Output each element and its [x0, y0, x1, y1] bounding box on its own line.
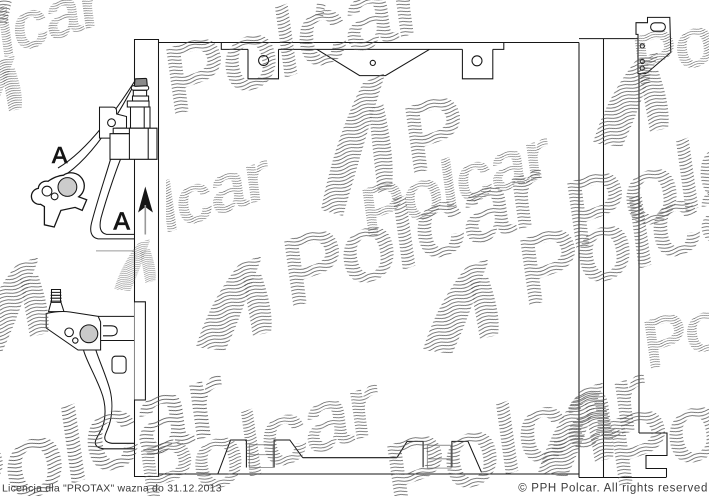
svg-text:© PPH Polcar. All rights reser: © PPH Polcar. All rights reserved — [518, 483, 708, 495]
svg-text:Licencja dla "PROTAX" wazna do: Licencja dla "PROTAX" wazna do 31.12.201… — [2, 483, 222, 495]
